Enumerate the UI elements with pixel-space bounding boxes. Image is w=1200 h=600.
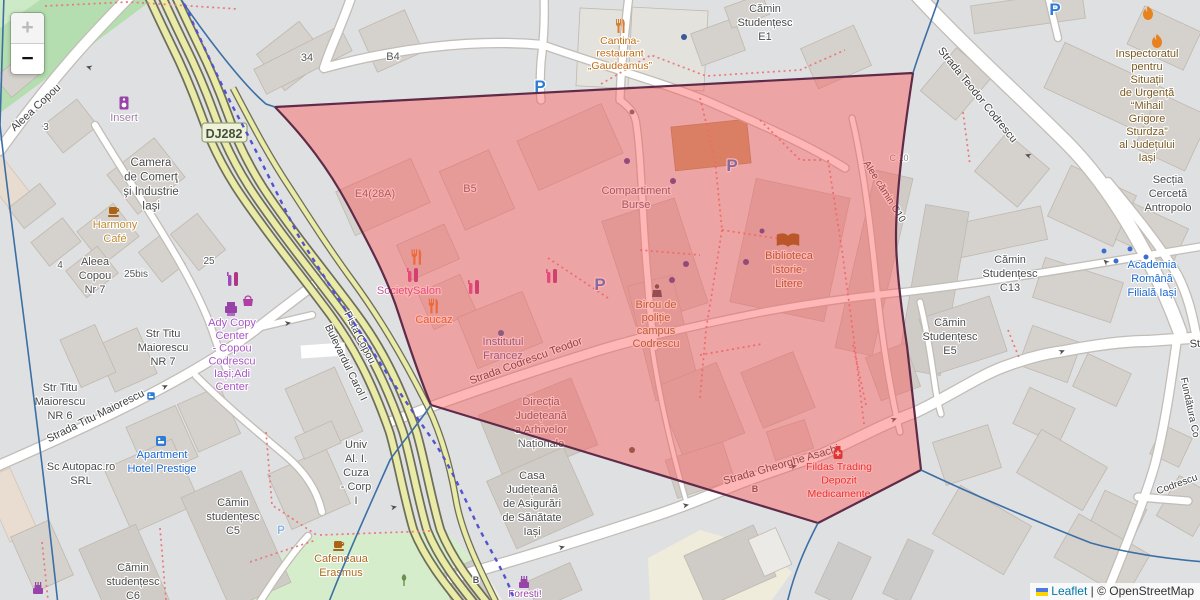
svg-text:3: 3	[43, 122, 49, 133]
svg-text:AcademiaRomânăFilială Iași: AcademiaRomânăFilială Iași	[1128, 259, 1178, 299]
svg-text:Str: Str	[1189, 337, 1200, 350]
svg-text:B: B	[473, 575, 480, 585]
svg-text:P: P	[1049, 0, 1060, 19]
svg-text:B4: B4	[386, 51, 399, 63]
svg-text:25: 25	[203, 256, 215, 267]
svg-text:P: P	[277, 523, 285, 537]
svg-text:25bis: 25bis	[124, 269, 148, 280]
svg-text:Insert: Insert	[110, 112, 138, 124]
svg-text:DJ282: DJ282	[206, 127, 243, 141]
svg-text:34: 34	[301, 52, 313, 64]
svg-text:4: 4	[57, 260, 63, 271]
